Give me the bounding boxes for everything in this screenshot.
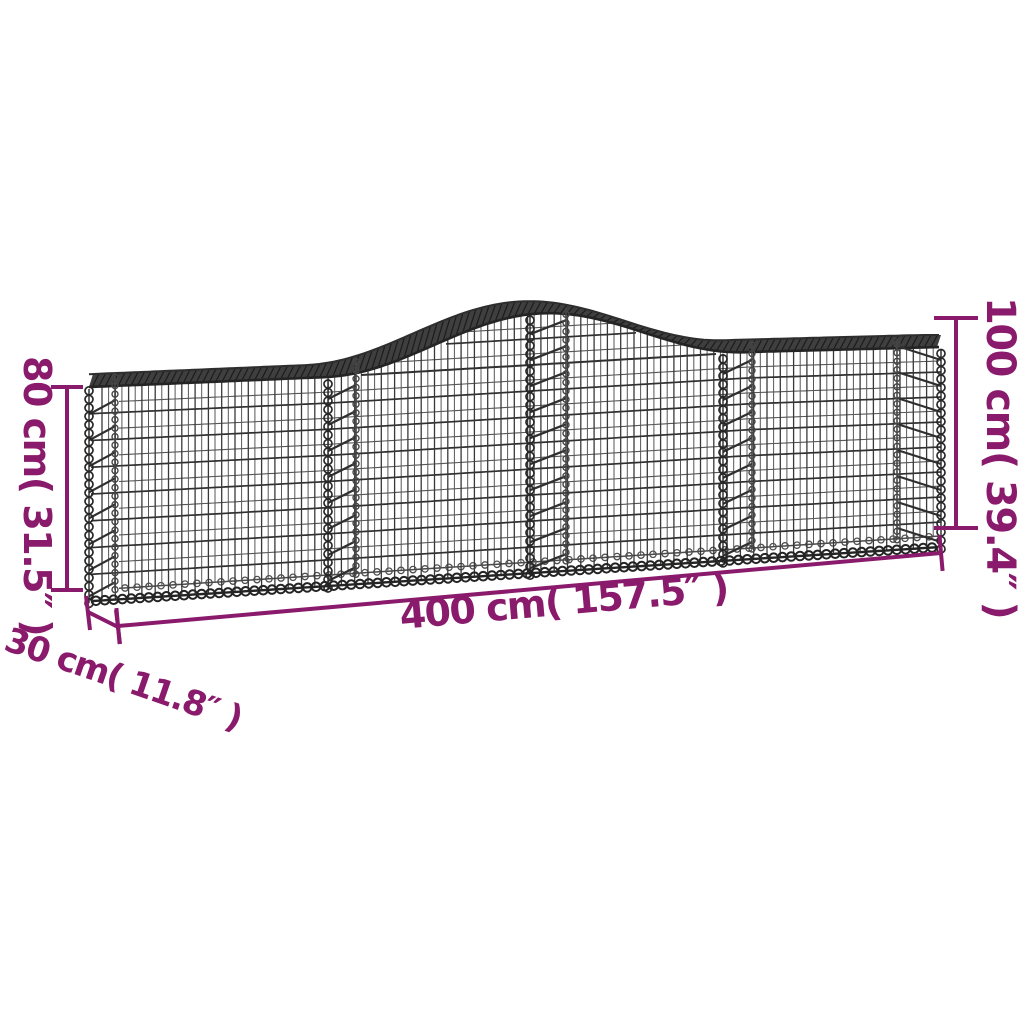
gabion-basket-drawing [85, 301, 945, 607]
dimension-label-height-right: 100 cm( 39.4″ ) [978, 297, 1022, 618]
gabion-basket-diagram [0, 0, 1024, 1024]
diagram-stage: 80 cm( 31.5″ ) 100 cm( 39.4″ ) 400 cm( 1… [0, 0, 1024, 1024]
dimension-label-height-left: 80 cm( 31.5″ ) [15, 356, 57, 635]
